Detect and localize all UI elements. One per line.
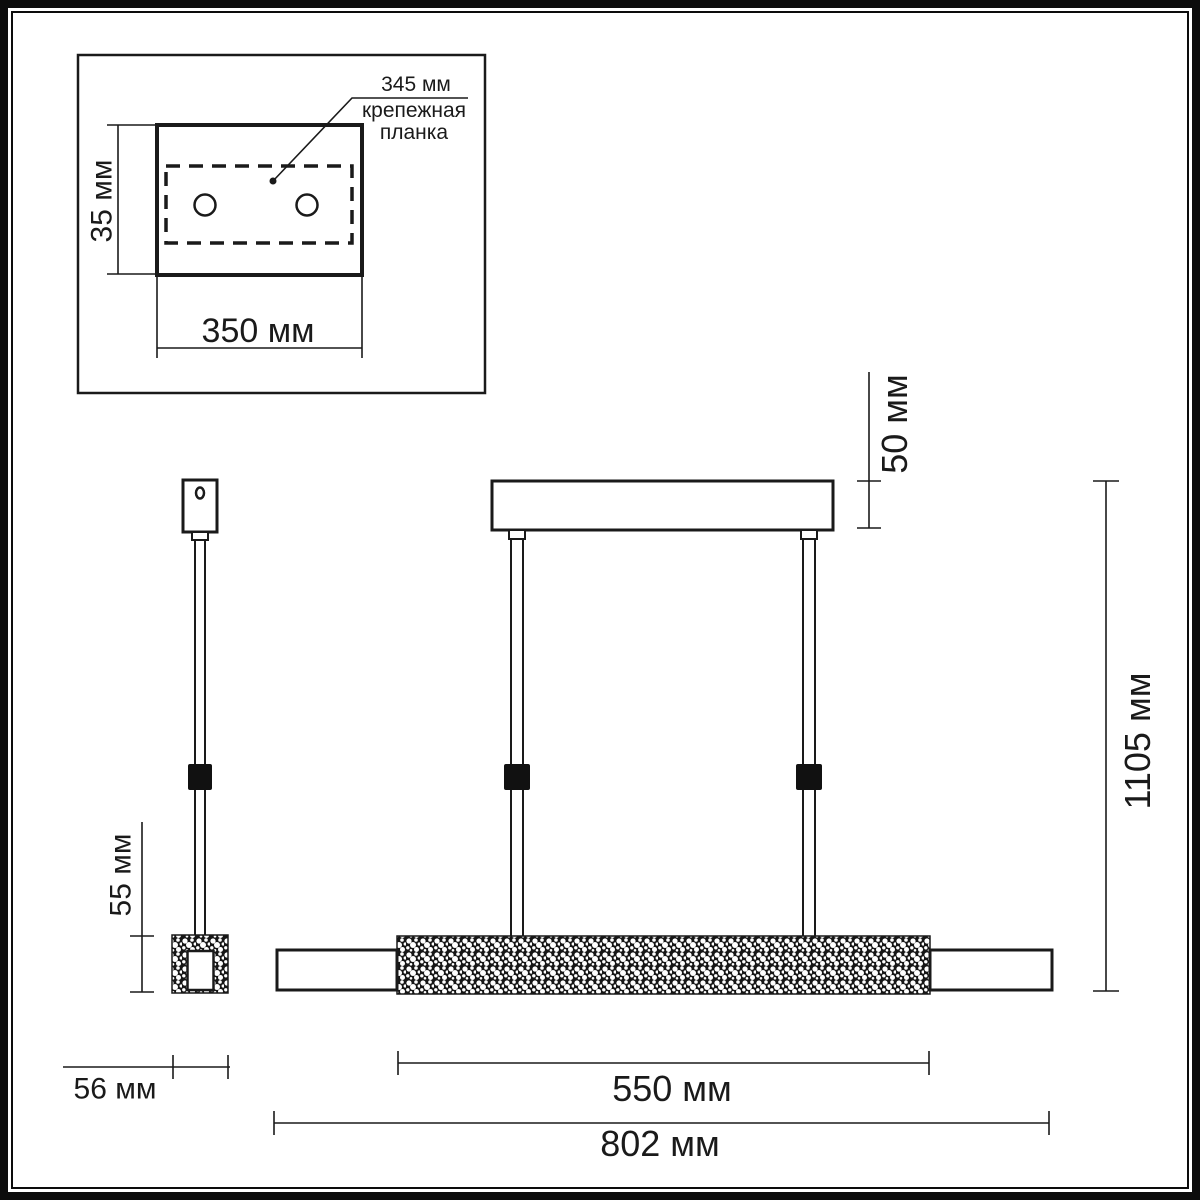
bracket-neck-left bbox=[509, 530, 525, 539]
label-plate-name: крепежная планка bbox=[362, 100, 466, 144]
side-view bbox=[172, 480, 228, 993]
label-plate-span: 345 мм bbox=[381, 74, 451, 96]
bracket-neck-right bbox=[801, 530, 817, 539]
label-overall-length: 802 мм bbox=[600, 1125, 720, 1163]
ceiling-bar bbox=[492, 481, 833, 530]
label-ceiling-bar-height: 50 мм bbox=[876, 374, 914, 474]
rod-connector-right bbox=[796, 764, 822, 790]
label-canopy-width: 350 мм bbox=[202, 314, 315, 350]
crystal-tube bbox=[397, 936, 930, 994]
label-crystal-section: 550 мм bbox=[612, 1070, 732, 1108]
technical-drawing-page: 345 мм крепежная планка 35 мм 350 мм 50 … bbox=[0, 0, 1200, 1200]
tube-end-opening bbox=[188, 951, 214, 990]
rod-connector-side bbox=[188, 764, 212, 790]
label-tube-height: 55 мм bbox=[105, 834, 137, 917]
label-plate-name-line2: планка bbox=[362, 122, 466, 144]
label-plate-name-line1: крепежная bbox=[362, 100, 466, 122]
end-cap-left bbox=[277, 950, 397, 990]
screw-hole-right bbox=[297, 195, 318, 216]
rod-connector-left bbox=[504, 764, 530, 790]
label-tube-width: 56 мм bbox=[74, 1073, 157, 1105]
bracket-neck-side bbox=[192, 532, 208, 540]
end-cap-right bbox=[930, 950, 1052, 990]
label-overall-drop: 1105 мм bbox=[1119, 673, 1157, 810]
drawing-canvas bbox=[0, 0, 1200, 1200]
label-canopy-height: 35 мм bbox=[86, 160, 118, 243]
canopy-top-view bbox=[157, 125, 362, 275]
screw-hole-left bbox=[195, 195, 216, 216]
front-view bbox=[277, 481, 1052, 994]
